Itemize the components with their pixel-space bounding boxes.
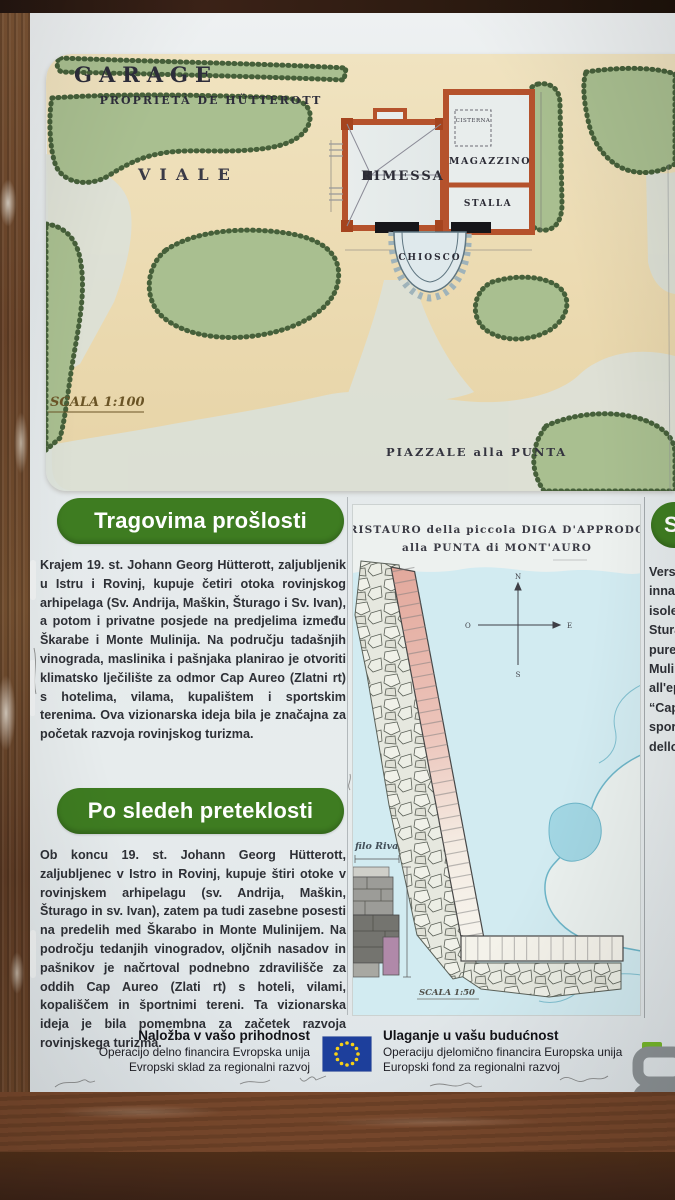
wear-scribbles [0, 0, 675, 1200]
frame-bottom-upper [0, 1092, 675, 1152]
frame-bottom-lower [0, 1152, 675, 1200]
photo-of-info-board: RIMESSA MAGAZZINO CISTERNA STALLA CHIOSC… [0, 0, 675, 1200]
frame-left [0, 13, 30, 1092]
frame-top [0, 0, 675, 13]
